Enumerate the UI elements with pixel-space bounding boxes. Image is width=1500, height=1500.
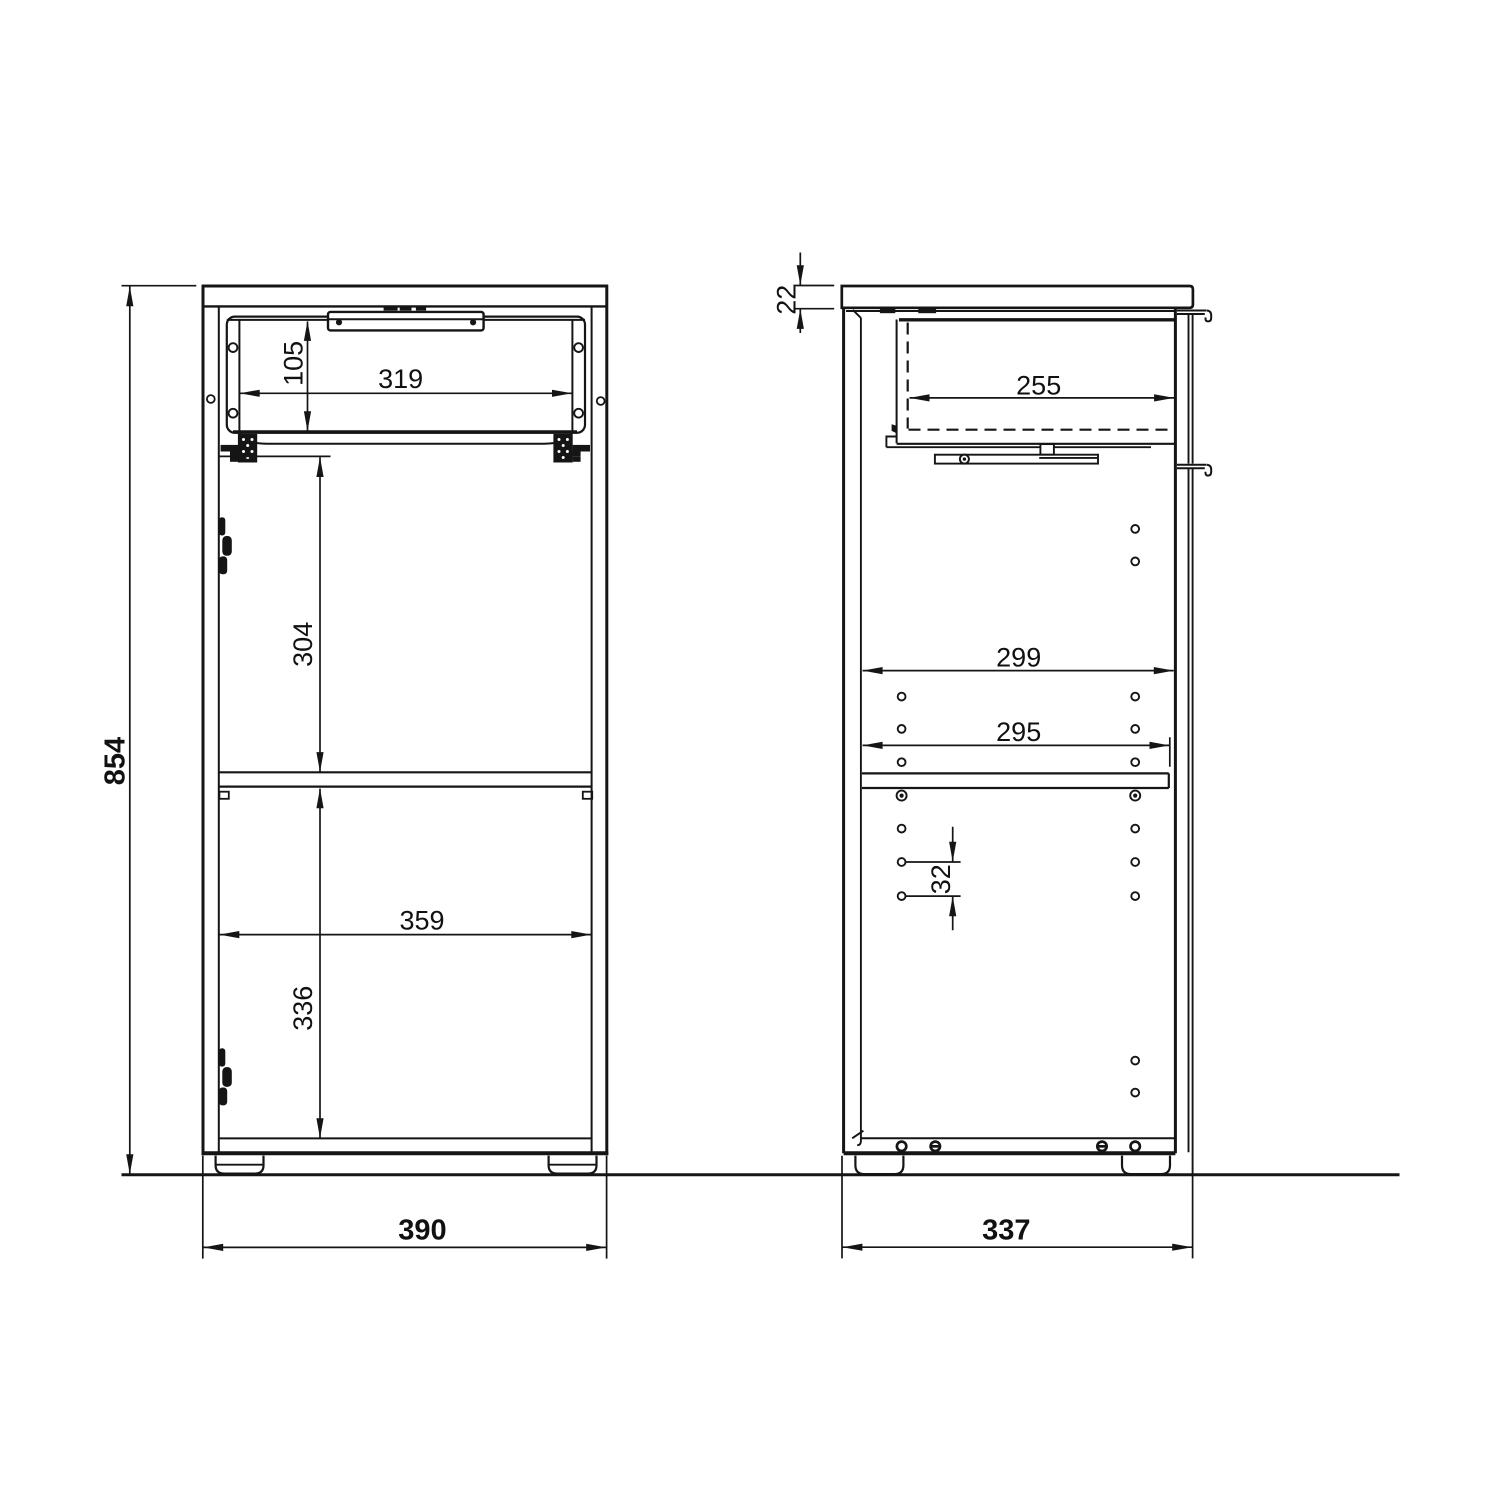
- svg-text:295: 295: [996, 717, 1041, 747]
- svg-text:390: 390: [398, 1214, 446, 1246]
- svg-text:304: 304: [288, 622, 318, 667]
- svg-text:105: 105: [278, 341, 308, 386]
- svg-text:854: 854: [99, 737, 131, 785]
- svg-text:299: 299: [996, 642, 1041, 672]
- svg-text:22: 22: [771, 285, 801, 315]
- svg-text:337: 337: [982, 1214, 1030, 1246]
- svg-text:336: 336: [288, 986, 318, 1031]
- svg-text:359: 359: [399, 905, 444, 935]
- svg-text:32: 32: [926, 864, 956, 894]
- svg-text:255: 255: [1016, 370, 1061, 400]
- svg-text:319: 319: [378, 364, 423, 394]
